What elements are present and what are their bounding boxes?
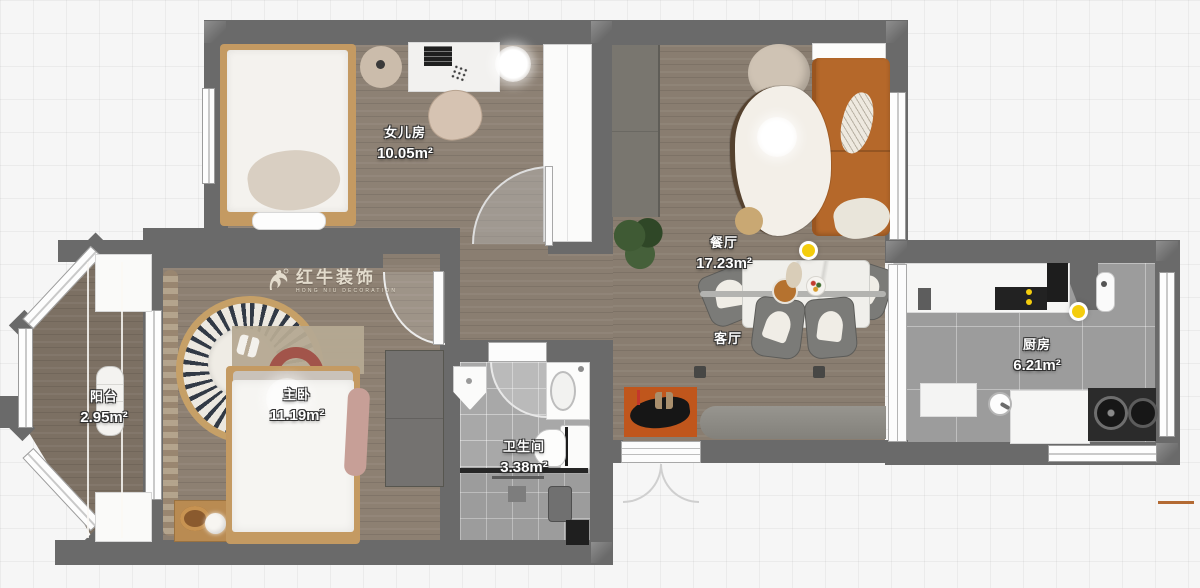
wall-segment-top [204, 20, 908, 45]
table-lamp [205, 513, 226, 534]
counter-appliance [918, 288, 931, 310]
bath-accessory [508, 486, 526, 502]
kitchen-island-counter [920, 383, 977, 417]
window-kitchen-right [1159, 272, 1175, 437]
room-area: 2.95m² [80, 409, 128, 426]
wall-joint [1156, 443, 1178, 463]
ceiling-light-living [757, 117, 797, 157]
window-balcony-divider [145, 310, 162, 500]
cooktop-burner-1 [1094, 396, 1128, 430]
room-label-kitchen: 厨房 6.21m² [1013, 334, 1061, 374]
plant [614, 216, 666, 272]
door-leaf-master [433, 271, 444, 345]
shower-mat [566, 520, 589, 545]
wall-joint [591, 21, 612, 43]
salad-plate [806, 276, 826, 296]
daughter-bed-pillow [252, 212, 326, 230]
water-heater [1096, 272, 1115, 312]
curtain-master [163, 270, 178, 536]
hob-knob-2 [1026, 299, 1032, 305]
room-name: 厨房 [1013, 334, 1061, 353]
room-name: 客厅 [714, 328, 742, 347]
kitchen-hob-top [995, 287, 1047, 310]
room-label-master: 主卧 11.19m² [269, 384, 324, 424]
door-arc-entry-left [623, 464, 662, 503]
room-area: 11.19m² [269, 407, 324, 424]
door-leaf-bathroom [488, 342, 547, 362]
scale-line [1158, 501, 1194, 504]
room-label-living: 客厅 [714, 328, 742, 347]
kitchen-tall-unit [1047, 263, 1068, 302]
door-leaf-daughter [545, 166, 553, 246]
window-kitchen-bottom [1048, 445, 1157, 462]
wall-segment-daughter-right [590, 20, 613, 254]
room-label-balcony: 阳台 2.95m² [80, 386, 128, 426]
shoe-horn [637, 390, 640, 405]
door-arc-entry-right [660, 464, 699, 503]
floor-socket-2 [813, 366, 825, 378]
room-name: 餐厅 [696, 232, 752, 251]
master-wardrobe [385, 350, 444, 487]
vanity-basin [550, 371, 576, 411]
window-balcony-left [18, 328, 33, 428]
room-area: 17.23m² [696, 255, 752, 272]
wall-joint [204, 21, 226, 43]
shower-screen-handle [492, 476, 544, 479]
room-name: 女儿房 [377, 122, 433, 141]
wall-joint [1156, 241, 1178, 261]
room-area: 3.38m² [500, 459, 548, 476]
brand-subtitle: HONG NIU DECORATION [296, 288, 397, 294]
small-pouf [735, 207, 763, 235]
dining-chair-2 [750, 295, 807, 361]
shoe-cabinet [700, 406, 886, 439]
brand-watermark: 红牛装饰 HONG NIU DECORATION [266, 268, 397, 294]
room-label-dining: 餐厅 17.23m² [696, 232, 752, 272]
master-bed-blanket [344, 387, 371, 476]
kitchen-bottom-counter [1010, 390, 1090, 444]
floor-lamp-icon [376, 60, 385, 69]
brand-name: 红牛装饰 [296, 269, 397, 286]
light-point-dining [802, 244, 815, 257]
balcony-cabinet-top [95, 254, 152, 312]
brand-bull-icon [266, 268, 290, 294]
light-point-kitchen [1072, 305, 1085, 318]
dining-chair-3 [803, 296, 858, 360]
hob-knob-1 [1026, 289, 1032, 295]
wall-joint [591, 542, 612, 563]
balcony-cabinet-bottom [95, 492, 152, 542]
door-sliding-kitchen [888, 264, 907, 442]
wall-joint [886, 21, 907, 43]
floor-plan-canvas: 红牛装饰 HONG NIU DECORATION 女儿房 10.05m² 餐厅 … [0, 0, 1200, 588]
hallway-floor-door-gap [383, 252, 443, 268]
wall-segment-bathroom-right [590, 340, 613, 565]
hallway-floor [460, 254, 613, 342]
room-name: 主卧 [269, 384, 324, 403]
door-frame-entry [621, 441, 701, 463]
wall-segment-kitchen-top [885, 240, 1177, 263]
room-name: 卫生间 [500, 436, 548, 455]
wall-wedge-outside-west [0, 396, 20, 428]
room-name: 阳台 [80, 386, 128, 405]
slippers-pair [655, 392, 673, 409]
wall-joint [886, 241, 907, 261]
window-living-right [889, 92, 906, 240]
vanity-faucet [578, 366, 584, 372]
corner-sink-drain [466, 378, 472, 384]
floor-socket-1 [694, 366, 706, 378]
shower-fixture [548, 486, 572, 522]
window-daughter-left [202, 88, 215, 184]
water-heater-dot [1101, 281, 1107, 287]
ceiling-light-daughter [495, 46, 531, 82]
wall-segment-master-top [143, 246, 383, 268]
room-label-daughter: 女儿房 10.05m² [377, 122, 433, 162]
desk-printer [424, 46, 452, 66]
room-area: 10.05m² [377, 145, 433, 162]
wall-segment-living-bottom-right [700, 440, 908, 463]
living-tall-cabinet [612, 45, 660, 217]
room-label-bathroom: 卫生间 3.38m² [500, 436, 548, 476]
cooktop-burner-2 [1128, 398, 1158, 428]
room-area: 6.21m² [1013, 357, 1061, 374]
